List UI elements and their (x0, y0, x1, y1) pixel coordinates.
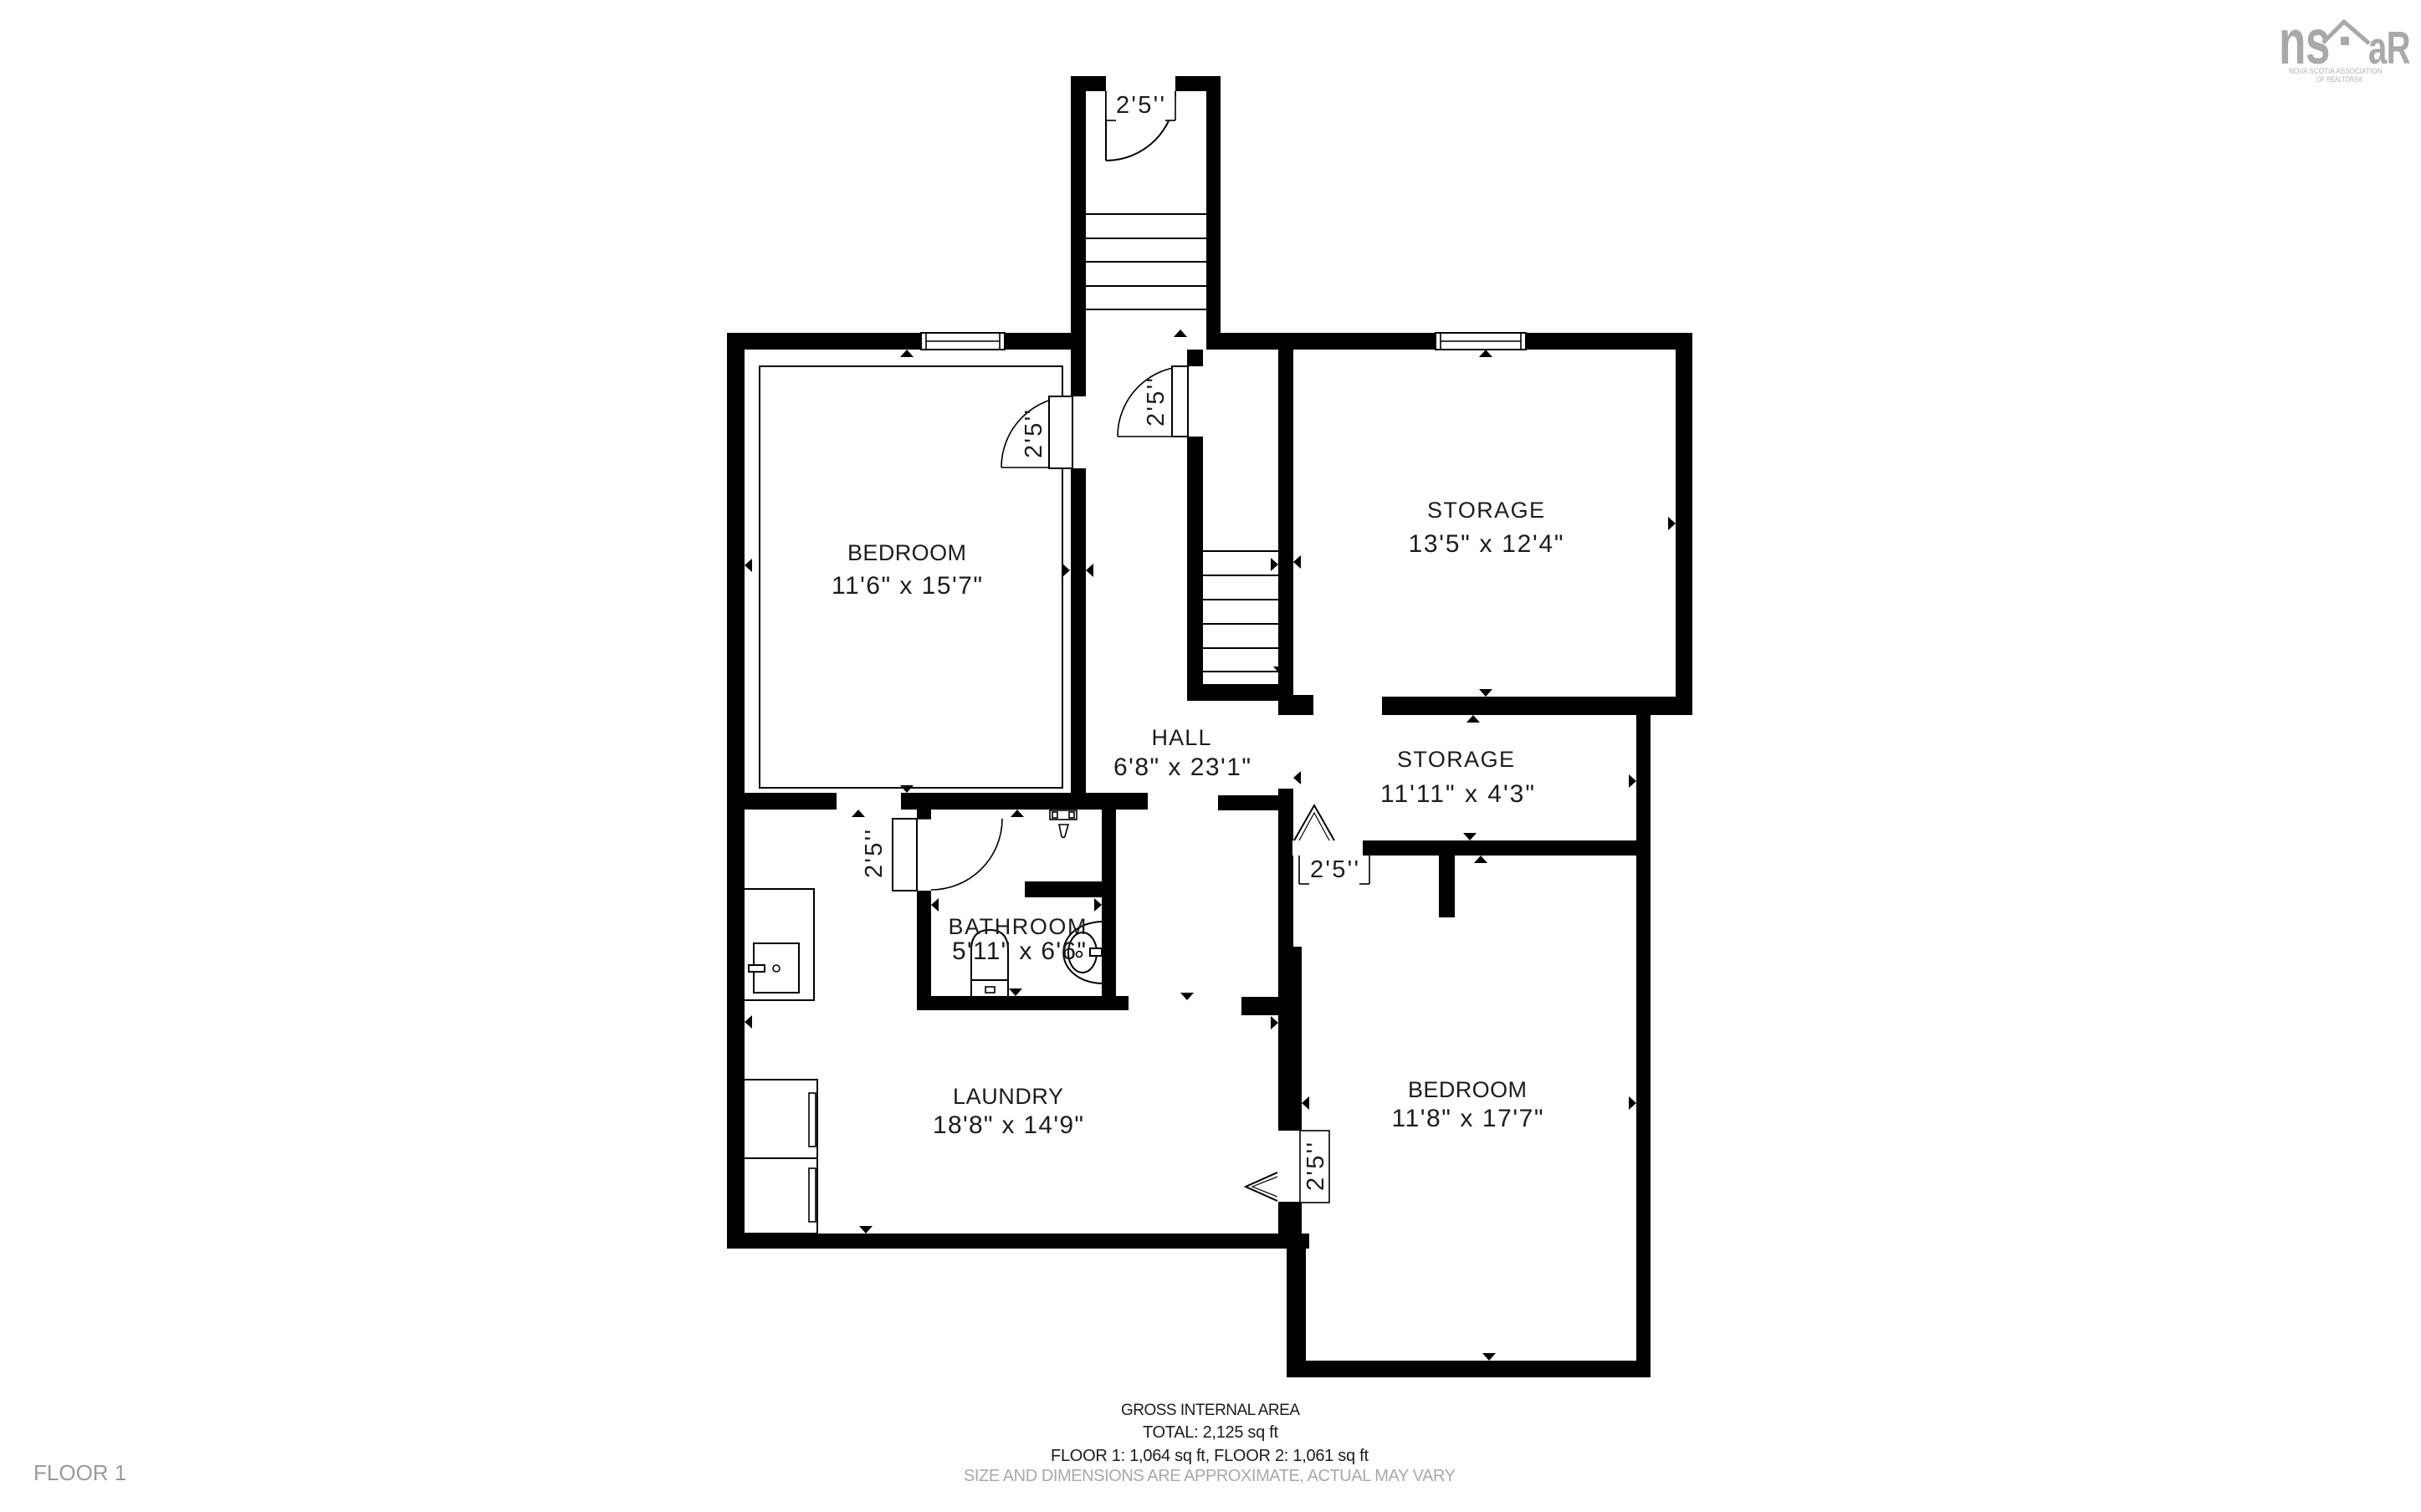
svg-text:OF REALTORS®: OF REALTORS® (2316, 75, 2362, 84)
svg-text:BATHROOM: BATHROOM (949, 914, 1087, 939)
svg-text:13'5" x 12'4": 13'5" x 12'4" (1409, 530, 1564, 558)
svg-text:11'11" x 4'3": 11'11" x 4'3" (1380, 780, 1534, 808)
svg-text:SIZE AND DIMENSIONS ARE APPROX: SIZE AND DIMENSIONS ARE APPROXIMATE, ACT… (964, 1467, 1456, 1485)
svg-text:BEDROOM: BEDROOM (1408, 1077, 1527, 1102)
svg-text:GROSS INTERNAL AREA: GROSS INTERNAL AREA (1121, 1402, 1300, 1419)
svg-text:FLOOR 1: 1,064 sq ft, FLOOR 2:: FLOOR 1: 1,064 sq ft, FLOOR 2: 1,061 sq … (1051, 1447, 1369, 1465)
svg-text:2'5'': 2'5'' (1303, 1142, 1329, 1191)
svg-text:18'8" x 14'9": 18'8" x 14'9" (933, 1111, 1083, 1139)
svg-text:2'5'': 2'5'' (1116, 92, 1164, 119)
svg-text:STORAGE: STORAGE (1427, 498, 1544, 523)
svg-text:2'5'': 2'5'' (1310, 856, 1359, 883)
svg-text:11'6" x 15'7": 11'6" x 15'7" (832, 572, 982, 600)
svg-text:TOTAL: 2,125 sq ft: TOTAL: 2,125 sq ft (1143, 1423, 1278, 1442)
svg-text:LAUNDRY: LAUNDRY (953, 1084, 1063, 1109)
svg-text:11'8" x 17'7": 11'8" x 17'7" (1392, 1105, 1543, 1132)
svg-text:HALL: HALL (1152, 725, 1211, 750)
svg-text:STORAGE: STORAGE (1397, 747, 1514, 772)
svg-text:BEDROOM: BEDROOM (847, 540, 966, 565)
svg-text:NOVA SCOTIA ASSOCIATION: NOVA SCOTIA ASSOCIATION (2289, 67, 2383, 75)
svg-text:2'5'': 2'5'' (1143, 378, 1170, 427)
svg-text:2'5'': 2'5'' (861, 830, 888, 878)
svg-text:6'8" x 23'1": 6'8" x 23'1" (1113, 753, 1251, 781)
svg-text:FLOOR 1: FLOOR 1 (33, 1460, 126, 1485)
svg-text:2'5'': 2'5'' (1021, 410, 1047, 458)
